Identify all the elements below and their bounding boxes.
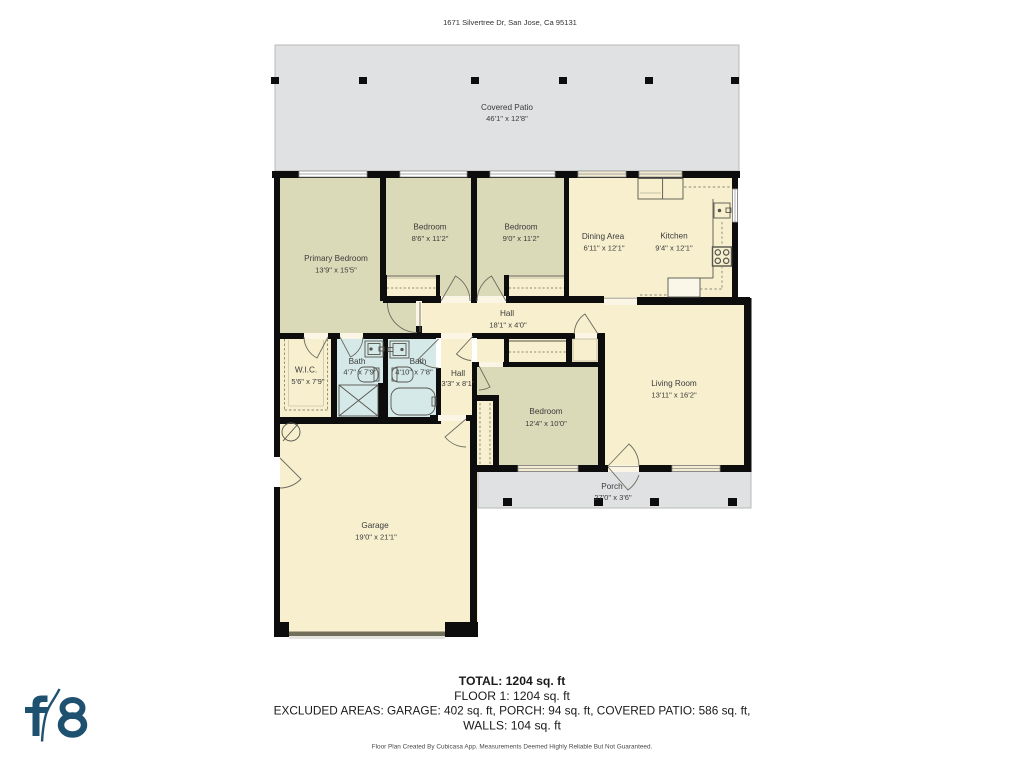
svg-text:4'7" x 7'9": 4'7" x 7'9" xyxy=(343,368,377,377)
svg-text:EXCLUDED AREAS: GARAGE: 402 sq: EXCLUDED AREAS: GARAGE: 402 sq. ft, PORC… xyxy=(274,704,751,718)
svg-text:6'11" x 12'1": 6'11" x 12'1" xyxy=(583,244,624,253)
svg-text:19'0" x 21'1": 19'0" x 21'1" xyxy=(355,533,397,542)
svg-text:WALLS: 104 sq. ft: WALLS: 104 sq. ft xyxy=(463,719,561,733)
svg-text:Bedroom: Bedroom xyxy=(504,223,537,232)
svg-text:18'1" x 4'0": 18'1" x 4'0" xyxy=(489,321,527,330)
svg-text:Hall: Hall xyxy=(500,309,514,318)
svg-text:46'1" x 12'8": 46'1" x 12'8" xyxy=(486,114,528,123)
svg-text:12'4" x 10'0": 12'4" x 10'0" xyxy=(525,419,567,428)
svg-text:Garage: Garage xyxy=(361,521,389,530)
svg-text:Living Room: Living Room xyxy=(651,379,697,388)
svg-text:Porch: Porch xyxy=(601,482,623,491)
svg-text:Dining Area: Dining Area xyxy=(582,232,625,241)
svg-text:13'11" x 16'2": 13'11" x 16'2" xyxy=(651,391,697,400)
svg-text:1671 Silvertree Dr, San Jose,: 1671 Silvertree Dr, San Jose, Ca 95131 xyxy=(443,18,577,27)
svg-text:TOTAL: 1204 sq. ft: TOTAL: 1204 sq. ft xyxy=(459,674,566,688)
svg-text:9'4" x 12'1": 9'4" x 12'1" xyxy=(655,244,693,253)
svg-text:27'0" x 3'6": 27'0" x 3'6" xyxy=(594,493,632,502)
svg-text:Covered Patio: Covered Patio xyxy=(481,103,533,112)
svg-text:Primary Bedroom: Primary Bedroom xyxy=(304,254,368,263)
svg-text:Floor Plan Created By Cubicasa: Floor Plan Created By Cubicasa App. Meas… xyxy=(372,744,653,751)
svg-text:4'10" x 7'8": 4'10" x 7'8" xyxy=(395,368,433,377)
svg-text:Kitchen: Kitchen xyxy=(660,232,688,241)
svg-text:8'6" x 11'2": 8'6" x 11'2" xyxy=(412,234,449,243)
svg-text:Bath: Bath xyxy=(349,357,366,366)
svg-text:5'6" x 7'9": 5'6" x 7'9" xyxy=(291,377,325,386)
svg-text:W.I.C.: W.I.C. xyxy=(295,366,317,375)
svg-text:Hall: Hall xyxy=(451,369,465,378)
svg-text:9'0" x 11'2": 9'0" x 11'2" xyxy=(503,234,540,243)
svg-text:FLOOR 1: 1204 sq. ft: FLOOR 1: 1204 sq. ft xyxy=(454,689,570,703)
svg-text:Bedroom: Bedroom xyxy=(529,407,562,416)
svg-text:3'3" x 8'1": 3'3" x 8'1" xyxy=(441,379,475,388)
svg-text:Bedroom: Bedroom xyxy=(413,223,446,232)
svg-text:13'9" x 15'5": 13'9" x 15'5" xyxy=(315,266,357,275)
svg-text:Bath: Bath xyxy=(410,357,427,366)
